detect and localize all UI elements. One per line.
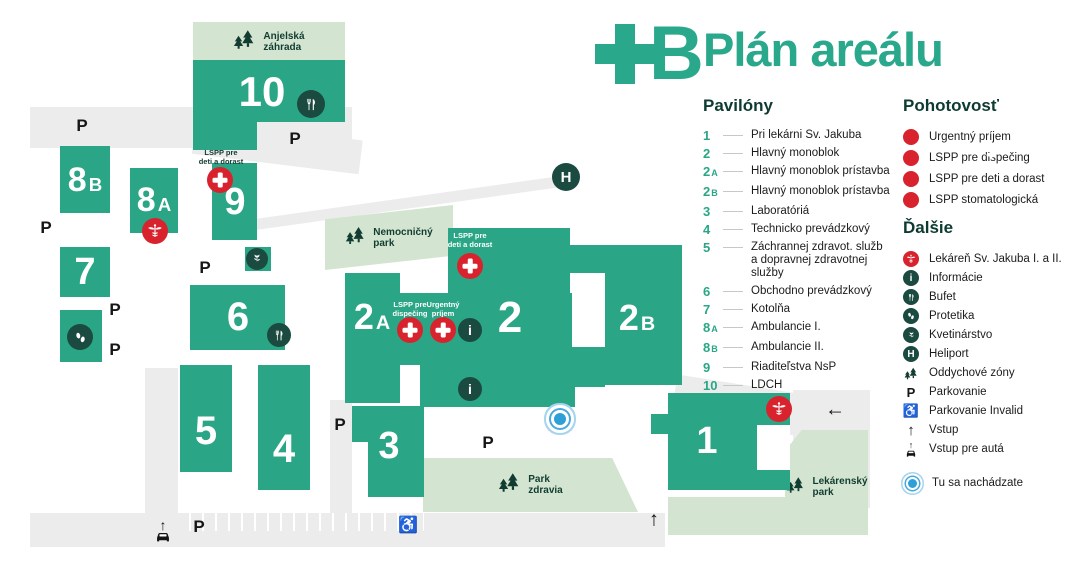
legend-item: LSPP stomatologická: [903, 192, 1078, 208]
legend-item: Urgentný príjem: [903, 129, 1078, 145]
legend-item: 2Hlavný monoblok: [703, 147, 893, 160]
building-4-label: 4: [273, 429, 295, 469]
fork-knife-icon: [267, 323, 291, 347]
legend-pavilony-title: Pavilóny: [703, 96, 893, 116]
legend-item: Oddychové zóny: [903, 365, 1078, 381]
plus-logo-icon: [595, 24, 655, 84]
building-2a: [345, 273, 400, 403]
parking-marker: P: [76, 116, 87, 136]
legend-item: 4Technicko prevádzkový: [703, 223, 893, 236]
car-entrance-icon: ↑: [156, 518, 171, 542]
info-icon: i: [458, 318, 482, 342]
legend-item: 8BAmbulancie II.: [703, 341, 893, 356]
building-1-label: 1: [696, 422, 717, 460]
legend-pohotovost: Pohotovosť Urgentný príjem LSPP pre disp…: [903, 96, 1078, 213]
emergency-cross-icon: [903, 150, 919, 166]
you-are-here-icon: [908, 479, 917, 488]
legend-item: 10LDCH: [703, 379, 893, 392]
heliport-icon: H: [903, 346, 919, 362]
tree-icon: [903, 365, 919, 381]
legend-pavilony: Pavilóny 1Pri lekárni Sv. Jakuba 2Hlavný…: [703, 96, 893, 397]
emergency-cross-icon: [903, 171, 919, 187]
building-10: [193, 122, 257, 150]
park-anjelska-label: Anjelskázáhrada: [263, 31, 304, 53]
page-title: Plán areálu: [703, 22, 943, 77]
parking-marker: P: [109, 340, 120, 360]
building-2-label: 2: [498, 296, 522, 340]
park-anjelska: Anjelskázáhrada: [193, 22, 345, 62]
legend-item: 2BHlavný monoblok prístavba: [703, 185, 893, 200]
emergency-cross-icon: [903, 129, 919, 145]
brand-logo: B: [595, 24, 702, 84]
building-3-label: 3: [378, 427, 399, 465]
legend-item: Protetika: [903, 308, 1078, 324]
emergency-cross-icon: [207, 167, 233, 193]
brand-letter: B: [649, 25, 702, 83]
building-2: [420, 365, 575, 407]
emergency-cross-icon: [457, 253, 483, 279]
building-10-label: 10: [239, 71, 286, 113]
parking-marker: P: [193, 517, 204, 537]
pharmacy-icon: [142, 218, 168, 244]
park-zdravia: Parkzdravia: [423, 458, 638, 512]
legend-dalsie-title: Ďalšie: [903, 218, 1078, 238]
parking-stripes: [178, 513, 424, 531]
parking-icon: P: [903, 384, 919, 400]
emergency-cross-icon: [903, 192, 919, 208]
legend-item: 9Riaditeľstva NsP: [703, 361, 893, 374]
parking-marker: P: [289, 129, 300, 149]
legend-item: LSPP pre deti a dorast: [903, 171, 1078, 187]
wheelchair-icon: ♿: [903, 403, 919, 419]
building-7-label: 7: [74, 253, 95, 291]
tree-icon: [345, 226, 367, 250]
urgentny-prijem-label: Urgentnýpríjem: [417, 300, 469, 318]
fork-knife-icon: [903, 289, 919, 305]
legend-item: 6Obchodno prevádzkový: [703, 285, 893, 298]
footprints-icon: [903, 308, 919, 324]
car-entrance-icon: ↑: [903, 441, 919, 457]
info-icon: i: [903, 270, 919, 286]
building-8a-label: 8A: [137, 183, 171, 217]
building-5-label: 5: [195, 411, 217, 451]
park-nemocnicny-label: Nemocničnýpark: [373, 227, 432, 249]
heliport-icon: H: [552, 163, 580, 191]
pharmacy-icon: [766, 396, 792, 422]
tree-icon: [498, 472, 522, 498]
legend-item: 8AAmbulancie I.: [703, 321, 893, 336]
you-are-here-icon: [554, 413, 566, 425]
fork-knife-icon: [297, 90, 325, 118]
lspp-deti-label: LSPP predeti a dorast: [435, 231, 505, 249]
legend-item: Bufet: [903, 289, 1078, 305]
lspp-deti-label: LSPP predeti a dorast: [186, 148, 256, 166]
parking-marker: P: [109, 300, 120, 320]
park-lekarensky-label: Lekárenskýpark: [786, 473, 868, 501]
legend-item: H Heliport: [903, 346, 1078, 362]
entrance-arrow-icon: ↑: [649, 509, 659, 532]
legend-item: 5Záchrannej zdravot. služba dopravnej zd…: [703, 241, 893, 280]
parking-marker: P: [199, 258, 210, 278]
building-2b: [572, 347, 605, 387]
tree-icon: [233, 29, 257, 55]
parking-marker: P: [40, 218, 51, 238]
legend-item: ↑ Vstup: [903, 422, 1078, 438]
entrance-arrow-icon: ←: [825, 399, 845, 422]
road: [145, 368, 178, 518]
legend-item: ♿ Parkovanie Invalid: [903, 403, 1078, 419]
legend-dalsie: Ďalšie Lekáreň Sv. Jakuba I. a II. i Inf…: [903, 218, 1078, 496]
legend-item: 2AHlavný monoblok prístavba: [703, 165, 893, 180]
building-8b-label: 8B: [68, 163, 102, 197]
building-2b: [570, 245, 608, 273]
parking-marker: P: [482, 433, 493, 453]
arrow-up-icon: ↑: [903, 422, 919, 438]
flower-icon: [246, 248, 268, 270]
legend-item: 1Pri lekárni Sv. Jakuba: [703, 129, 893, 142]
legend-item: Lekáreň Sv. Jakuba I. a II.: [903, 251, 1078, 267]
parking-marker: P: [334, 415, 345, 435]
wheelchair-icon: ♿: [398, 515, 418, 535]
legend-item: P Parkovanie: [903, 384, 1078, 400]
building-6-label: 6: [227, 297, 249, 337]
legend-item-you-are-here: Tu sa nachádzate: [903, 474, 1078, 493]
building-2b-label: 2B: [619, 300, 655, 336]
building-1: [651, 414, 668, 434]
legend-pohotovost-title: Pohotovosť: [903, 96, 1078, 116]
info-icon: i: [458, 377, 482, 401]
legend-item: ↑ Vstup pre autá: [903, 441, 1078, 457]
legend-item: 7Kotolňa: [703, 303, 893, 316]
legend-item: Kvetinárstvo: [903, 327, 1078, 343]
legend-item: i Informácie: [903, 270, 1078, 286]
flower-icon: [903, 327, 919, 343]
park-zdravia-label: Parkzdravia: [528, 474, 562, 496]
pharmacy-icon: [903, 251, 919, 267]
emergency-cross-icon: [430, 317, 456, 343]
emergency-cross-icon: [397, 317, 423, 343]
legend-item: 3Laboratóriá: [703, 205, 893, 218]
footprints-icon: [67, 324, 93, 350]
